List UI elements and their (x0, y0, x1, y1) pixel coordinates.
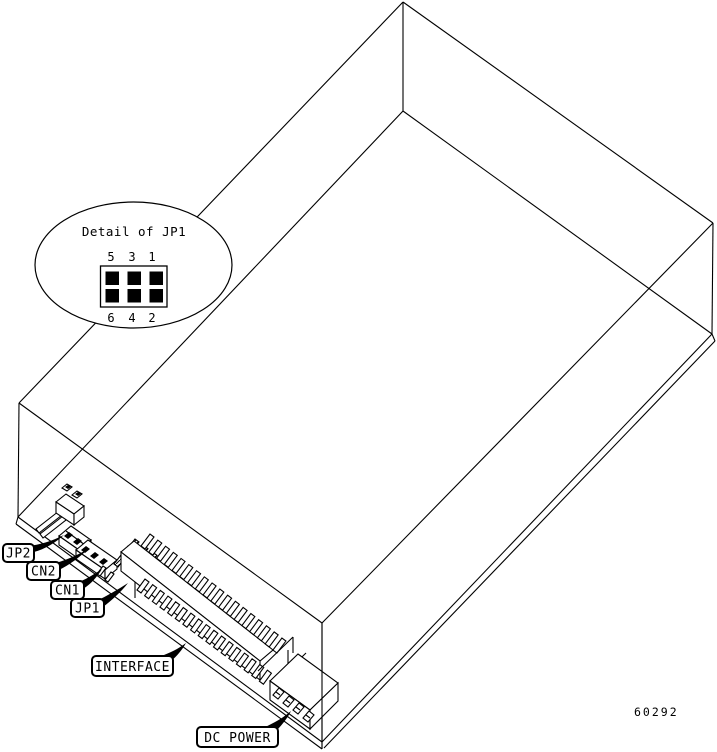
label-cn1-text: CN1 (55, 584, 80, 599)
pin-number-3: 3 (128, 250, 135, 264)
pin-number-1: 1 (148, 250, 155, 264)
figure-number: 60292 (634, 705, 679, 719)
pin-number-6: 6 (107, 311, 114, 325)
callout-title: Detail of JP1 (82, 224, 186, 239)
label-cn1: CN1 (51, 581, 84, 599)
label-cn2-text: CN2 (31, 565, 56, 580)
label-jp2: JP2 (3, 544, 34, 562)
label-jp1-text: JP1 (75, 602, 100, 617)
drive-connector-diagram: Detail of JP1 5 3 1 6 4 2 (0, 0, 717, 752)
label-dc-power: DC POWER (197, 727, 278, 747)
pin-number-4: 4 (128, 311, 135, 325)
label-cn2: CN2 (27, 562, 60, 580)
detail-callout: Detail of JP1 5 3 1 6 4 2 (35, 202, 232, 328)
label-dc-power-text: DC POWER (204, 731, 271, 746)
pin-number-5: 5 (107, 250, 114, 264)
label-jp2-text: JP2 (6, 547, 31, 562)
label-jp1: JP1 (71, 599, 104, 617)
drive-outline (16, 2, 715, 749)
label-interface: INTERFACE (92, 656, 173, 676)
pin-number-2: 2 (148, 311, 155, 325)
label-interface-text: INTERFACE (95, 660, 170, 675)
callout-ellipse (35, 202, 232, 328)
